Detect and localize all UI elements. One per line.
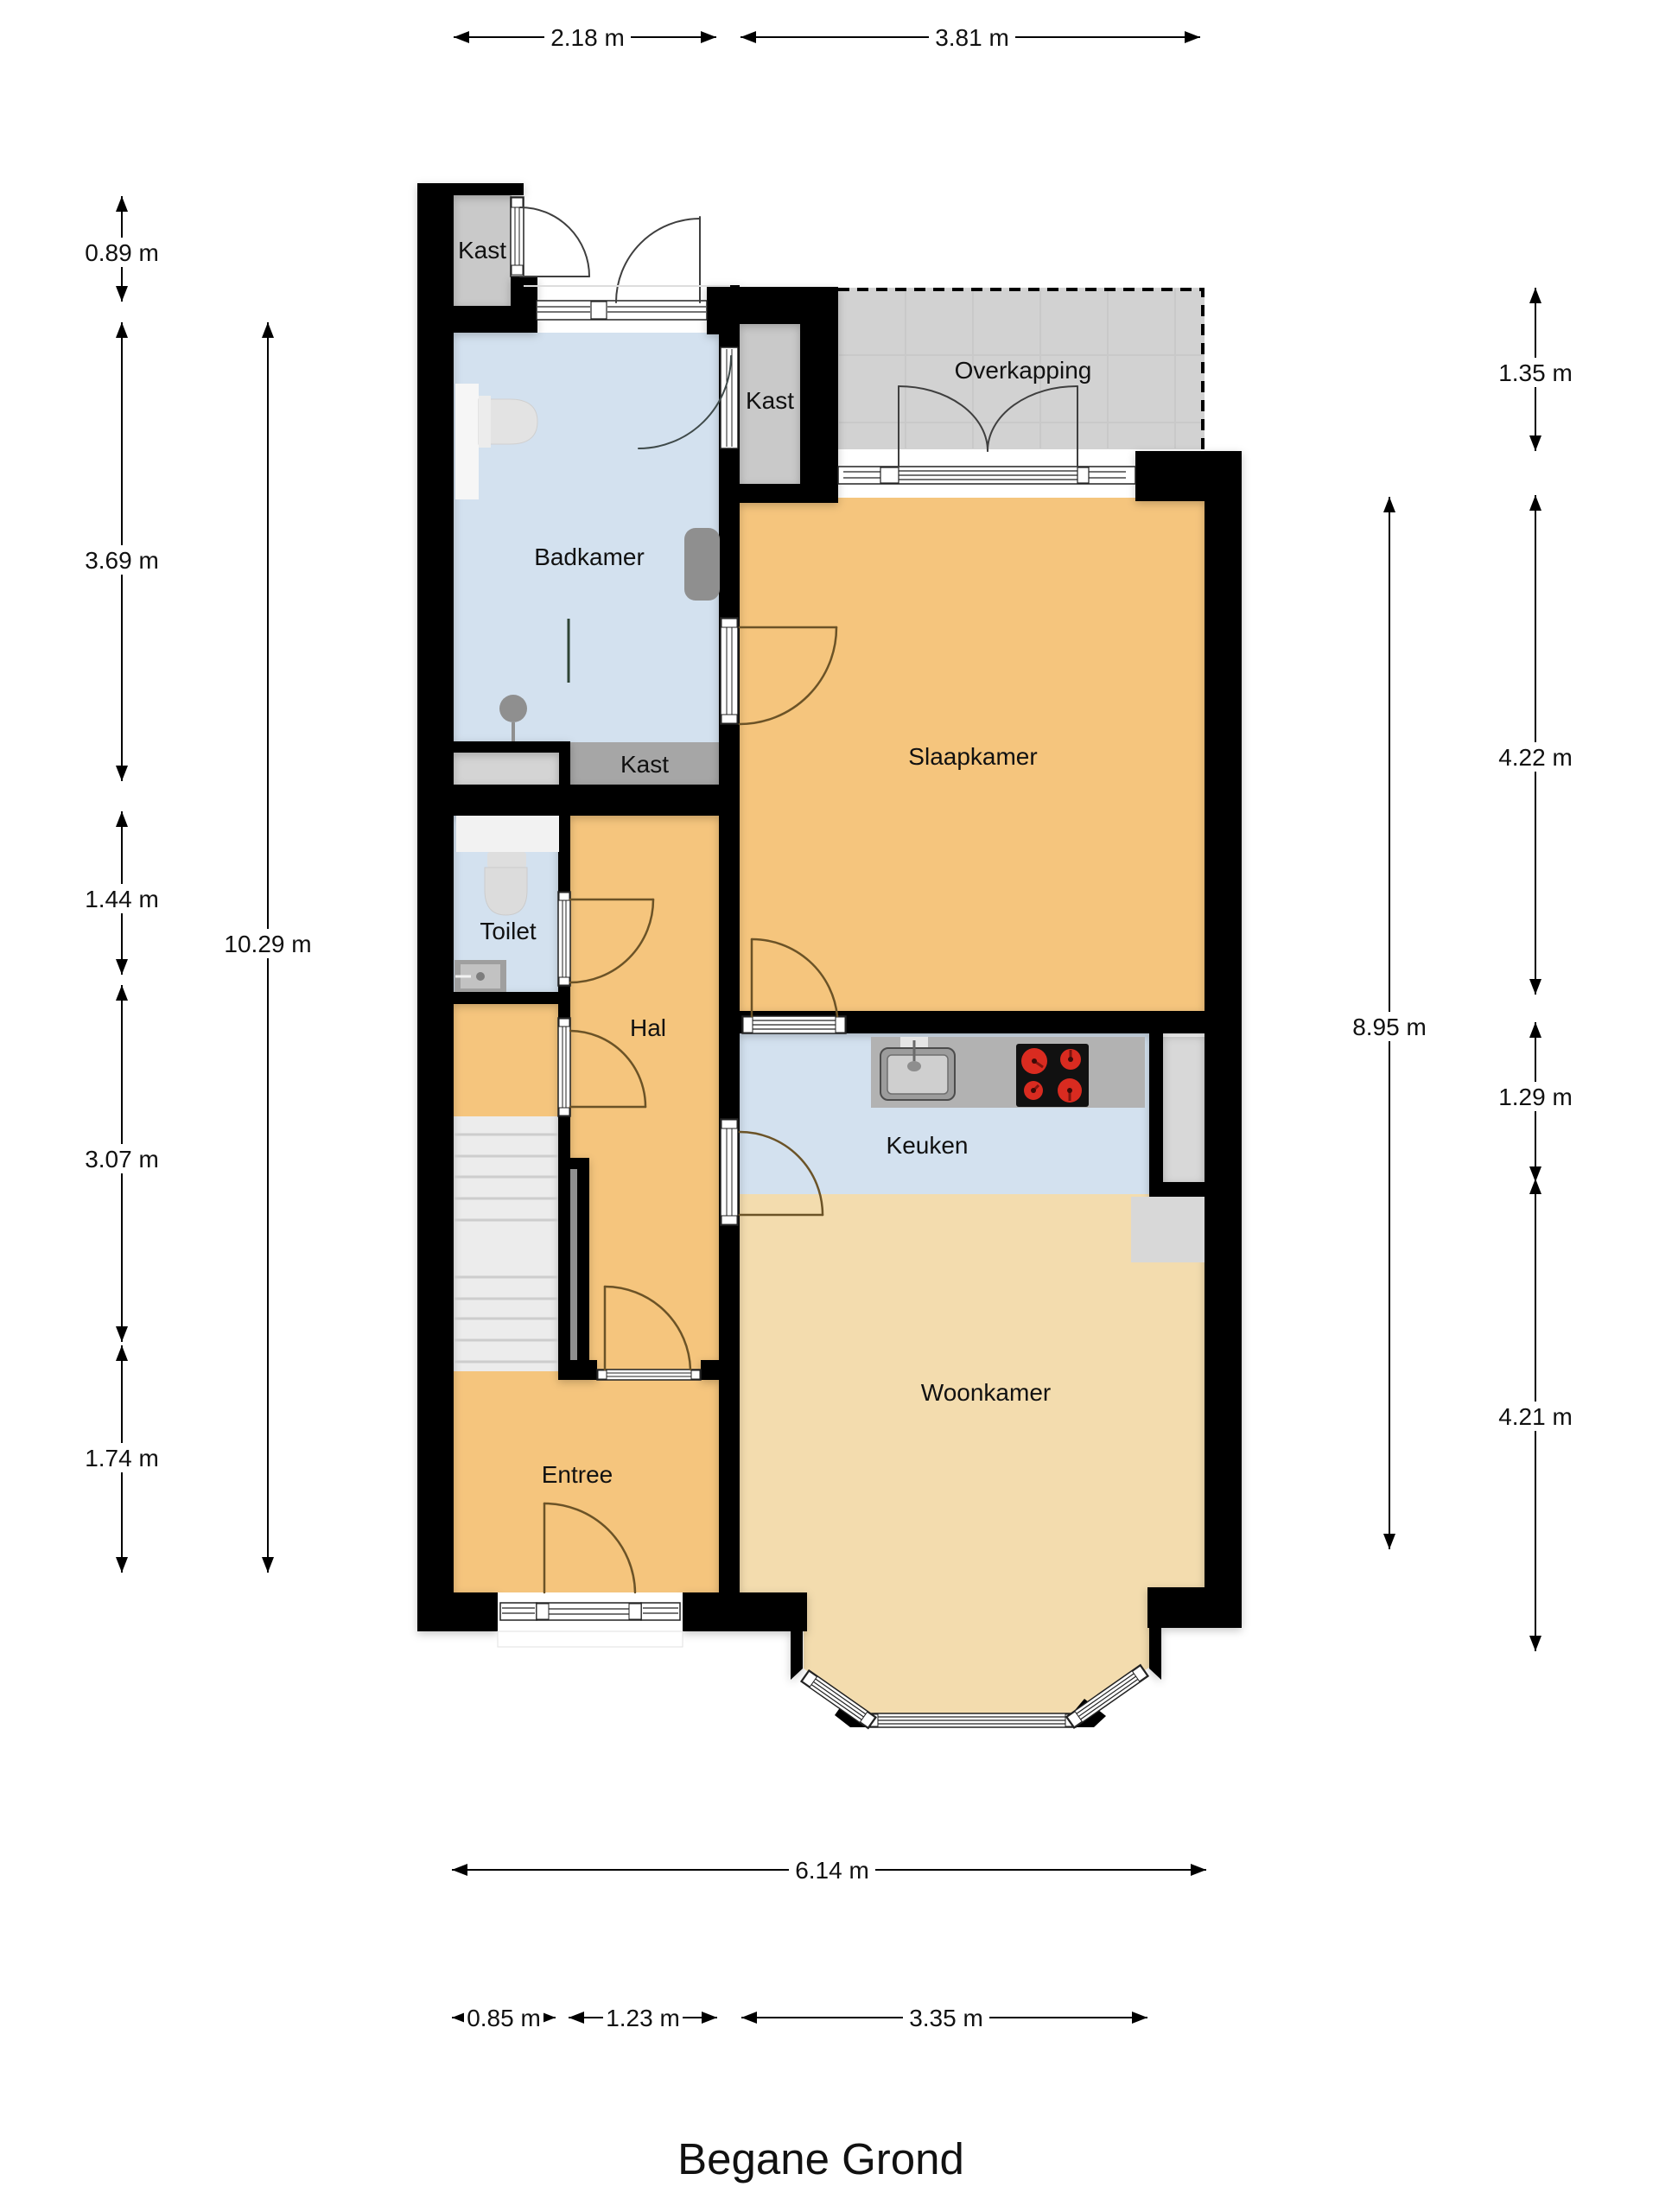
svg-text:Kast: Kast [458, 237, 506, 264]
svg-text:3.35 m: 3.35 m [909, 2005, 983, 2031]
svg-text:Entree: Entree [542, 1461, 613, 1488]
svg-text:1.23 m: 1.23 m [606, 2005, 680, 2031]
svg-text:Begane Grond: Begane Grond [677, 2134, 964, 2183]
svg-text:0.85 m: 0.85 m [467, 2005, 541, 2031]
svg-text:3.69 m: 3.69 m [85, 547, 159, 574]
svg-text:1.44 m: 1.44 m [85, 886, 159, 912]
svg-text:10.29 m: 10.29 m [224, 931, 311, 957]
svg-text:Slaapkamer: Slaapkamer [908, 743, 1037, 770]
svg-text:Kast: Kast [620, 751, 669, 778]
svg-text:Hal: Hal [630, 1014, 666, 1041]
svg-text:3.07 m: 3.07 m [85, 1146, 159, 1173]
svg-text:Kast: Kast [746, 387, 794, 414]
svg-text:3.81 m: 3.81 m [935, 24, 1009, 51]
svg-text:2.18 m: 2.18 m [550, 24, 625, 51]
svg-text:Toilet: Toilet [480, 918, 537, 944]
svg-text:1.29 m: 1.29 m [1498, 1084, 1573, 1110]
svg-text:Overkapping: Overkapping [955, 357, 1092, 384]
svg-text:4.22 m: 4.22 m [1498, 744, 1573, 771]
svg-text:Badkamer: Badkamer [534, 543, 645, 570]
svg-text:6.14 m: 6.14 m [795, 1857, 869, 1884]
svg-text:8.95 m: 8.95 m [1352, 1014, 1427, 1040]
svg-text:0.89 m: 0.89 m [85, 239, 159, 266]
svg-text:Woonkamer: Woonkamer [921, 1379, 1051, 1406]
svg-text:1.74 m: 1.74 m [85, 1445, 159, 1471]
svg-text:1.35 m: 1.35 m [1498, 359, 1573, 386]
svg-text:Keuken: Keuken [887, 1132, 969, 1159]
svg-text:4.21 m: 4.21 m [1498, 1403, 1573, 1430]
